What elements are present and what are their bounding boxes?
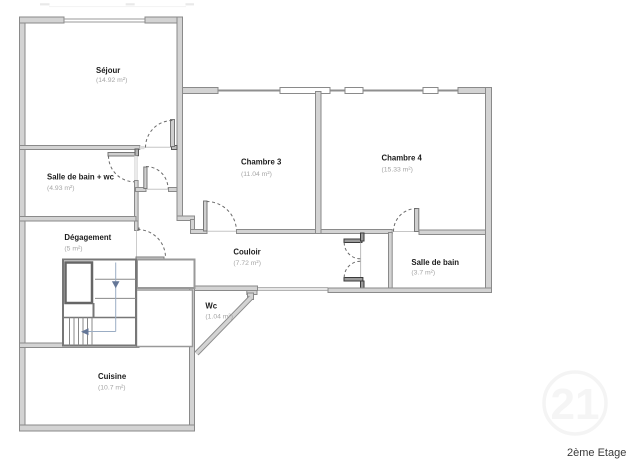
svg-text:(3.7 m²): (3.7 m²) <box>411 270 435 277</box>
svg-text:Salle de bain: Salle de bain <box>411 258 459 267</box>
svg-text:Chambre 4: Chambre 4 <box>382 154 423 163</box>
svg-text:(14.92 m²): (14.92 m²) <box>96 77 127 84</box>
svg-text:Chambre 3: Chambre 3 <box>241 158 282 167</box>
svg-text:(15.33 m²): (15.33 m²) <box>382 167 413 174</box>
svg-text:(7.72 m²): (7.72 m²) <box>233 260 261 267</box>
svg-text:Wc: Wc <box>205 302 217 311</box>
svg-text:Dégagement: Dégagement <box>64 233 111 242</box>
svg-text:Salle de bain + wc: Salle de bain + wc <box>47 173 115 182</box>
svg-text:2ème Etage: 2ème Etage <box>567 447 626 459</box>
svg-text:(11.04 m²): (11.04 m²) <box>241 171 272 178</box>
svg-text:(1.04 m²): (1.04 m²) <box>205 314 233 321</box>
svg-text:(10.7 m²): (10.7 m²) <box>98 385 126 392</box>
svg-text:Séjour: Séjour <box>96 66 120 75</box>
svg-text:(5 m²): (5 m²) <box>64 246 82 253</box>
svg-text:(4.93 m²): (4.93 m²) <box>47 185 75 192</box>
svg-text:Couloir: Couloir <box>233 248 260 257</box>
svg-text:21: 21 <box>551 380 600 429</box>
svg-text:Cuisine: Cuisine <box>98 372 127 381</box>
